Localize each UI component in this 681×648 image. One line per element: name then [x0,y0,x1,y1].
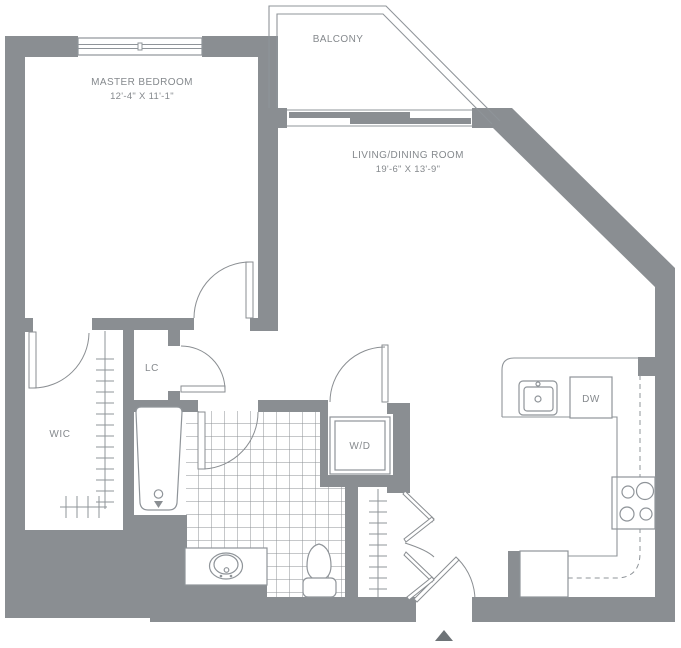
wall-wd-left [320,400,328,487]
hall-closet-rod [369,489,387,597]
bifold-closet-doors [403,491,434,600]
washer-dryer: W/D [330,417,390,474]
living-dining-label: LIVING/DINING ROOM [352,150,464,161]
wall-bedroom-right [258,37,278,331]
wall-kitchen-pier [638,357,675,376]
dishwasher: DW [570,377,612,418]
kitchen: DW [502,358,655,597]
bedroom-window [78,38,202,55]
wall-under-vanity [185,585,267,597]
labels-layer: MASTER BEDROOM 12'-4" X 11'-1" BALCONY L… [49,34,463,440]
wall-lc-stub-top [168,330,180,346]
wall-bath-mass [134,515,187,597]
wall-bath-north-right [258,400,328,412]
kitchen-peninsula [520,551,568,597]
wall-wd-flange-bottom [387,480,393,493]
washer-dryer-label: W/D [349,441,370,452]
wall-wd-flange-top [387,403,393,414]
wic-rod-bottom [60,496,107,518]
wic-rod [96,331,114,509]
door-lc [181,346,225,392]
wall-closet-left [345,487,358,597]
master-bedroom-dims: 12'-4" X 11'-1" [110,91,174,102]
wall-peninsula-stub [508,551,520,597]
vanity [185,548,267,585]
stove [612,477,655,529]
lc-label: LC [145,363,159,374]
wall-bottom-left [150,597,416,622]
wall-bedroom-foot [250,318,270,331]
wall-wd-right [393,403,410,493]
door-bedroom [194,262,253,318]
dishwasher-label: DW [582,394,600,405]
door-entry [414,557,475,602]
kitchen-sink [519,381,557,415]
bathtub [134,407,186,515]
wall-south-seg-a [25,318,33,332]
wall-south-seg-b [92,318,194,330]
master-bedroom-label: MASTER BEDROOM [91,77,193,88]
balcony-sliding-door [287,108,472,128]
counter-face-edge [502,417,617,556]
balcony-label: BALCONY [313,34,364,45]
wic-label: WIC [49,429,70,440]
wall-balcony-pier-left [258,108,287,128]
door-swing-icon [29,332,36,388]
door-wic [29,332,89,388]
floor-plan: W/D DW MASTER BEDROOM 12'-4" [0,0,681,648]
bifold-door-icon [403,491,434,522]
balcony-outline [269,6,500,124]
entry-arrow-icon [435,630,453,641]
floor-plan-svg: W/D DW MASTER BEDROOM 12'-4" [0,0,681,648]
living-dining-dims: 19'-6" X 13'-9" [376,164,441,175]
door-washer-dryer [330,345,388,402]
toilet-icon [307,544,331,580]
wall-wic-divider [123,318,134,597]
